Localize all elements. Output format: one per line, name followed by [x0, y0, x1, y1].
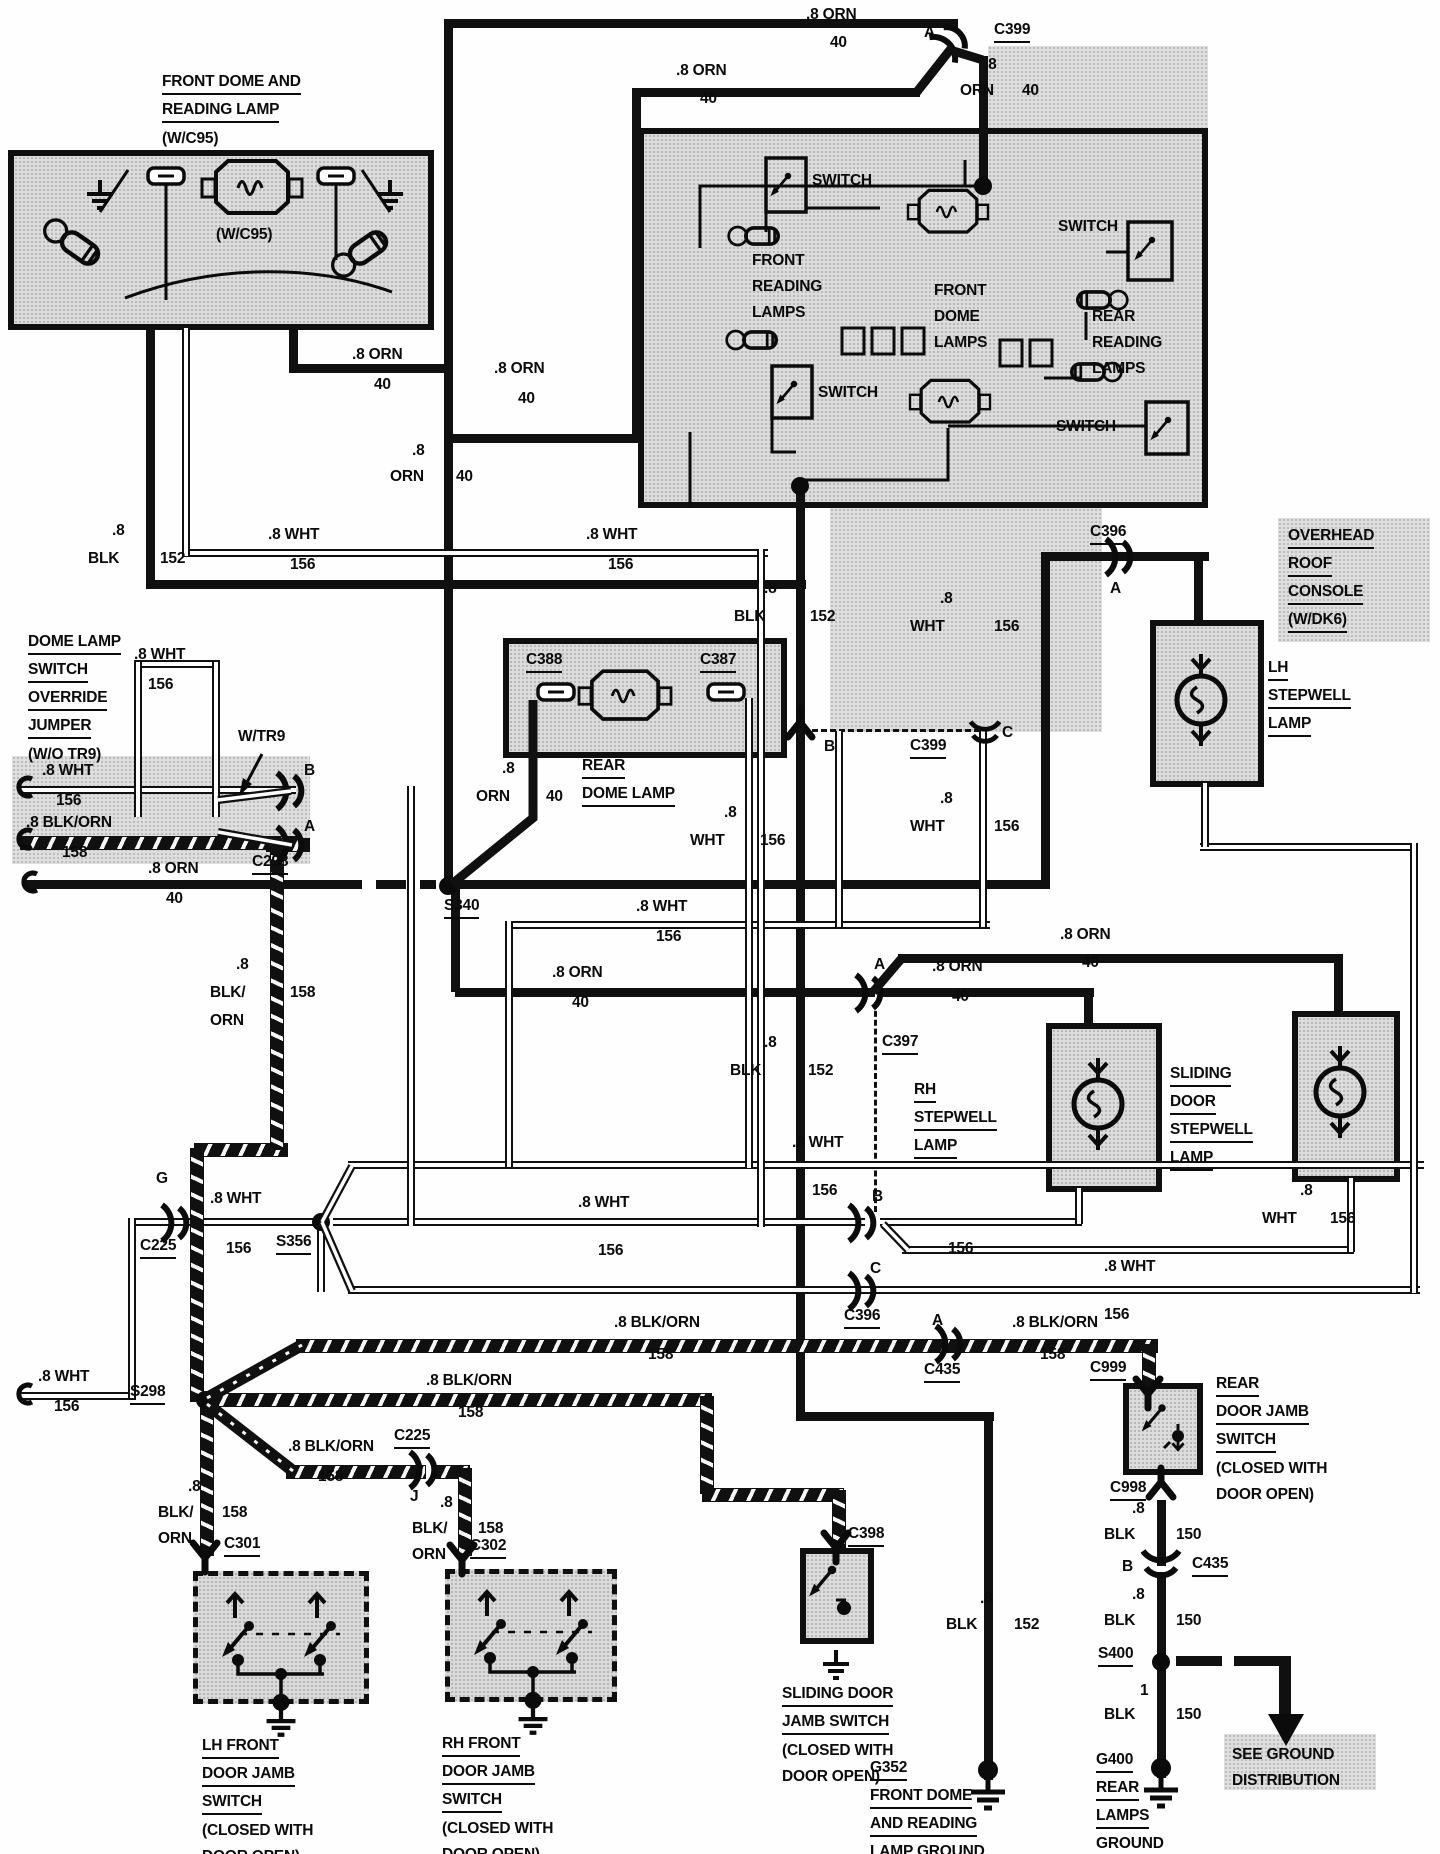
sliding-door-stepwell-lamp-box	[1292, 1011, 1400, 1182]
label-sgd-line: DISTRIBUTION	[1232, 1768, 1340, 1794]
label-l136-line: ORN	[412, 1542, 446, 1568]
label-l95: .8 WHT	[1104, 1254, 1155, 1280]
label-l11: 40	[374, 372, 391, 398]
label-l146: 40	[518, 386, 535, 412]
label-l68-line: .8	[236, 952, 249, 978]
label-l7: .8	[984, 52, 997, 78]
label-l103-line: 158	[648, 1342, 673, 1368]
wire-segment	[1075, 1188, 1083, 1224]
label-l118: BLK	[1104, 1702, 1135, 1728]
label-fdl-line: DOME	[934, 304, 980, 330]
label-l55-line: .8	[940, 586, 953, 612]
label-lhjs-line: SWITCH	[202, 1790, 262, 1815]
label-orc-line: OVERHEAD	[1288, 524, 1374, 549]
label-l34-line: B	[304, 758, 315, 784]
label-l13-line: ORN	[390, 464, 424, 490]
wire-segment	[212, 662, 220, 817]
wire-segment	[182, 549, 768, 557]
label-l34: B	[304, 758, 315, 784]
label-l119: 150	[1176, 1702, 1201, 1728]
label-l98-line: C396	[844, 1304, 880, 1329]
label-rdl-line: DOME LAMP	[582, 782, 675, 807]
gndsm-symbol	[823, 1650, 849, 1678]
label-l66: .8 ORN	[552, 960, 602, 986]
label-l114: BLK	[1104, 1608, 1135, 1634]
label-l45-line: C387	[700, 648, 736, 673]
label-lsl-line: LH	[1268, 656, 1288, 681]
label-l46-line: .8	[502, 756, 515, 782]
wire-segment	[1157, 1500, 1166, 1566]
label-l91: .8 WHT	[578, 1190, 629, 1216]
label-l124-line: 158	[458, 1400, 483, 1426]
label-l11-line: 40	[374, 372, 391, 398]
label-l109: BLK	[1104, 1522, 1135, 1548]
label-sw2: SWITCH	[1058, 214, 1118, 240]
label-l82-line: WHT	[1262, 1206, 1297, 1232]
label-l106: C999	[1090, 1356, 1126, 1384]
label-l48-line: 40	[546, 784, 563, 810]
label-l87-line: 156	[226, 1236, 251, 1262]
label-l10-line: .8 ORN	[352, 342, 402, 368]
label-l2-line: 40	[830, 30, 847, 56]
label-l104: .8 BLK/ORN	[1012, 1310, 1098, 1336]
wire-segment	[128, 1218, 136, 1398]
label-l76: .8 ORN	[1060, 922, 1110, 948]
label-l80: 152	[808, 1058, 833, 1084]
wire-segment	[146, 580, 806, 589]
label-l2: 40	[830, 30, 847, 56]
label-l71: ORN	[210, 1008, 244, 1034]
label-l76-line: .8 ORN	[1060, 922, 1110, 948]
label-l36-line: C298	[252, 850, 288, 875]
label-l77-line: 40	[1082, 950, 1099, 976]
label-l43: S340	[444, 894, 479, 922]
label-l7-line: .8	[984, 52, 997, 78]
label-l13: ORN	[390, 464, 424, 490]
label-l124: 158	[458, 1400, 483, 1426]
label-l92-line: 156	[598, 1238, 623, 1264]
label-l88-line: S356	[276, 1230, 311, 1255]
label-l42-line: 40	[166, 886, 183, 912]
label-l115-line: 150	[1176, 1608, 1201, 1634]
label-l52-line: .8	[764, 576, 777, 602]
label-l15-line: .8	[112, 518, 125, 544]
label-l103: 158	[648, 1342, 673, 1368]
label-l33: W/TR9	[238, 724, 285, 750]
label-l137-line: C301	[224, 1532, 260, 1557]
label-l138-line: C302	[470, 1534, 506, 1559]
label-sdjs-line: JAMB SWITCH	[782, 1710, 889, 1735]
label-l86-line: .8 WHT	[210, 1186, 261, 1212]
label-l141: BLK	[946, 1612, 977, 1638]
label-l62: WHT	[910, 814, 945, 840]
label-l9-line: 40	[1022, 78, 1039, 104]
label-g400: G400REARLAMPSGROUND	[1096, 1748, 1164, 1854]
label-l131-line: 158	[222, 1500, 247, 1526]
label-l116-line: S400	[1098, 1642, 1133, 1667]
label-l75-line: 40	[952, 984, 969, 1010]
wire-segment	[880, 1218, 1082, 1226]
label-l115: 150	[1176, 1608, 1201, 1634]
label-l91-line: .8 WHT	[578, 1190, 629, 1216]
label-frl: FRONTREADINGLAMPS	[752, 248, 822, 326]
label-l1-line: .8 ORN	[806, 2, 856, 28]
label-l101-line: C435	[924, 1358, 960, 1383]
label-l109-line: BLK	[1104, 1522, 1135, 1548]
label-l35: A	[304, 814, 315, 840]
label-l59-line: C399	[910, 734, 946, 759]
label-l139: C398	[848, 1522, 884, 1550]
label-l50-line: WHT	[690, 828, 725, 854]
label-l131: 158	[222, 1500, 247, 1526]
label-l50: WHT	[690, 828, 725, 854]
label-l63-line: 156	[994, 814, 1019, 840]
label-l81: .8	[1300, 1178, 1313, 1204]
label-l86: .8 WHT	[210, 1186, 261, 1212]
label-rrl-line: READING	[1092, 330, 1162, 356]
label-l59: C399	[910, 734, 946, 762]
label-l142: 152	[1014, 1612, 1039, 1638]
label-lhjs-line: DOOR JAMB	[202, 1762, 295, 1787]
label-l102-line: .8 BLK/ORN	[614, 1310, 700, 1336]
label-l6-line: C399	[994, 18, 1030, 43]
label-l92: 156	[598, 1238, 623, 1264]
wire-segment	[289, 328, 298, 368]
label-l120: .8 WHT	[38, 1364, 89, 1390]
wire-segment	[1234, 1656, 1280, 1666]
label-l53-line: BLK	[734, 604, 765, 630]
label-l43-line: S340	[444, 894, 479, 919]
label-l97-line: C	[870, 1256, 881, 1282]
label-l104-line: .8 BLK/ORN	[1012, 1310, 1098, 1336]
label-l116: S400	[1098, 1642, 1133, 1670]
label-l58-line: B	[824, 734, 835, 760]
label-lsl-line: LAMP	[1268, 712, 1311, 737]
label-l84-line: G	[156, 1166, 168, 1192]
label-l67: 40	[572, 990, 589, 1016]
label-l42: 40	[166, 886, 183, 912]
label-sw4: SWITCH	[1056, 414, 1116, 440]
label-dlsoj-line: OVERRIDE	[28, 686, 107, 711]
label-l84: G	[156, 1166, 168, 1192]
label-rdl-line: REAR	[582, 754, 625, 779]
label-l19: 156	[290, 552, 315, 578]
wire-segment	[348, 1286, 1420, 1294]
label-l96-line: 156	[1104, 1302, 1129, 1328]
label-l80-line: 152	[808, 1058, 833, 1084]
label-l108-line: .8	[1132, 1496, 1145, 1522]
label-rdjs-line: REAR	[1216, 1372, 1259, 1397]
wire-segment	[444, 19, 453, 888]
label-l141-line: BLK	[946, 1612, 977, 1638]
label-l60-line: C	[1002, 720, 1013, 746]
label-l90: 156	[812, 1178, 837, 1204]
label-l79: BLK	[730, 1058, 761, 1084]
label-l3-line: .8 ORN	[676, 58, 726, 84]
label-l113: .8	[1132, 1582, 1145, 1608]
label-frl-line: FRONT	[752, 248, 804, 274]
wire-segment	[878, 988, 1094, 997]
label-rdjs: REARDOOR JAMBSWITCH(CLOSED WITHDOOR OPEN…	[1216, 1372, 1327, 1508]
label-l82: WHT	[1262, 1206, 1297, 1232]
label-l54-line: 152	[810, 604, 835, 630]
label-l100: A	[932, 1308, 943, 1334]
label-g400-line: GROUND	[1096, 1832, 1164, 1854]
wire-segment	[332, 880, 436, 889]
label-l17-line: 152	[160, 546, 185, 572]
wire-segment	[455, 988, 875, 997]
label-l90-line: 156	[812, 1178, 837, 1204]
wire-segment	[700, 1396, 714, 1494]
label-frl-line: LAMPS	[752, 300, 805, 326]
label-lsl-line: STEPWELL	[1268, 684, 1351, 709]
label-l142-line: 152	[1014, 1612, 1039, 1638]
label-rdjs-line: SWITCH	[1216, 1428, 1276, 1453]
wire-segment	[505, 921, 513, 1167]
wire-segment	[745, 698, 753, 1168]
label-l133: .8	[440, 1490, 453, 1516]
label-l44: C388	[526, 648, 562, 676]
label-l20-line: .8 WHT	[586, 522, 637, 548]
wire-segment	[1176, 1656, 1222, 1666]
label-l39-line: .8 BLK/ORN	[26, 810, 112, 836]
wire-segment	[632, 88, 641, 438]
label-rdjs-line: DOOR OPEN)	[1216, 1482, 1314, 1508]
label-l19-line: 156	[290, 552, 315, 578]
label-fdrl-line: READING LAMP	[162, 98, 279, 123]
label-l21: 156	[608, 552, 633, 578]
label-lhjs-line: DOOR OPEN)	[202, 1844, 300, 1854]
wire-segment	[190, 1148, 204, 1402]
label-l48: 40	[546, 784, 563, 810]
label-sw3-line: SWITCH	[818, 380, 878, 406]
label-lhjs-line: LH FRONT	[202, 1734, 279, 1759]
label-l139-line: C398	[848, 1522, 884, 1547]
label-rrl: REARREADINGLAMPS	[1092, 304, 1162, 382]
label-sdsl-line: DOOR	[1170, 1090, 1216, 1115]
label-l130: BLK/	[158, 1500, 193, 1526]
label-l61: .8	[940, 786, 953, 812]
label-rrl-line: REAR	[1092, 304, 1135, 330]
label-l129-line: .8	[188, 1474, 201, 1500]
label-l49: .8	[724, 800, 737, 826]
label-l70-line: 158	[290, 980, 315, 1006]
label-l31-line: .8 WHT	[134, 642, 185, 668]
wire-segment	[1157, 1572, 1166, 1666]
label-l67-line: 40	[572, 990, 589, 1016]
label-l36: C298	[252, 850, 288, 878]
label-l63: 156	[994, 814, 1019, 840]
label-l93: B	[872, 1184, 883, 1210]
label-l112-line: C435	[1192, 1552, 1228, 1577]
label-sw1-line: SWITCH	[812, 168, 872, 194]
label-l5: A	[924, 20, 935, 46]
label-sw2-line: SWITCH	[1058, 214, 1118, 240]
label-l123: .8 BLK/ORN	[426, 1368, 512, 1394]
label-fdrl-line: (W/C95)	[162, 126, 218, 152]
label-l117-line: 1	[1140, 1678, 1148, 1704]
label-sgd: SEE GROUNDDISTRIBUTION	[1232, 1742, 1340, 1794]
label-l10: .8 ORN	[352, 342, 402, 368]
label-fdl: FRONTDOMELAMPS	[934, 278, 987, 356]
label-rdjs-line: (CLOSED WITH	[1216, 1456, 1327, 1482]
label-l54: 152	[810, 604, 835, 630]
label-l37-line: .8 WHT	[42, 758, 93, 784]
label-l121: 156	[54, 1394, 79, 1420]
label-l78: .8	[764, 1030, 777, 1056]
label-l73-line: C397	[882, 1030, 918, 1055]
label-l72: A	[874, 952, 885, 978]
label-l32: 156	[148, 672, 173, 698]
label-l102: .8 BLK/ORN	[614, 1310, 700, 1336]
label-l117: 1	[1140, 1678, 1148, 1704]
lh-stepwell-lamp-box	[1150, 620, 1264, 787]
label-l145-line: .8 ORN	[494, 356, 544, 382]
label-l134: BLK/	[412, 1516, 447, 1542]
wire-segment	[1200, 843, 1418, 851]
label-l146-line: 40	[518, 386, 535, 412]
label-l44-line: C388	[526, 648, 562, 673]
label-l47: ORN	[476, 784, 510, 810]
label-c396t: C396	[1090, 520, 1126, 548]
label-fdrl-line: FRONT DOME AND	[162, 70, 301, 95]
label-l72-line: A	[874, 952, 885, 978]
label-l110: 150	[1176, 1522, 1201, 1548]
label-l108: .8	[1132, 1496, 1145, 1522]
c399-shade	[988, 46, 1208, 134]
wire-segment	[448, 434, 640, 443]
label-g400-line: LAMPS	[1096, 1804, 1149, 1829]
label-l61-line: .8	[940, 786, 953, 812]
label-l14-line: 40	[456, 464, 473, 490]
rear-door-jamb-switch-box	[1123, 1383, 1203, 1475]
label-fdl-line: LAMPS	[934, 330, 987, 356]
label-rhjs-line: SWITCH	[442, 1788, 502, 1813]
wire-segment	[796, 486, 805, 1416]
label-l40-line: 158	[62, 840, 87, 866]
label-l60: C	[1002, 720, 1013, 746]
label-l94: 156	[948, 1236, 973, 1262]
label-l51-line: 156	[760, 828, 785, 854]
label-l125-line: .8 BLK/ORN	[288, 1434, 374, 1460]
wire-segment	[296, 1339, 956, 1353]
label-rhjs-line: DOOR OPEN)	[442, 1842, 540, 1854]
c397-connector-line	[874, 1002, 877, 1212]
lh-front-door-jamb-switch-box	[193, 1571, 369, 1704]
label-l47-line: ORN	[476, 784, 510, 810]
label-l129: .8	[188, 1474, 201, 1500]
label-l85-line: C225	[140, 1234, 176, 1259]
label-l128-line: J	[410, 1484, 418, 1510]
label-l119-line: 150	[1176, 1702, 1201, 1728]
label-l74-line: .8 ORN	[932, 954, 982, 980]
label-g352-line: AND READING	[870, 1812, 977, 1837]
label-rhsl-line: LAMP	[914, 1134, 957, 1159]
label-l16-line: BLK	[88, 546, 119, 572]
label-l133-line: .8	[440, 1490, 453, 1516]
label-l31: .8 WHT	[134, 642, 185, 668]
label-l3: .8 ORN	[676, 58, 726, 84]
label-l41-line: .8 ORN	[148, 856, 198, 882]
label-l18-line: .8 WHT	[268, 522, 319, 548]
label-sdsl-line: SLIDING	[1170, 1062, 1231, 1087]
label-dlsoj-line: JUMPER	[28, 714, 91, 739]
label-l70: 158	[290, 980, 315, 1006]
label-dlsoj-line: DOME LAMP	[28, 630, 121, 655]
label-l20: .8 WHT	[586, 522, 637, 548]
label-l57: 156	[994, 614, 1019, 640]
label-l41: .8 ORN	[148, 856, 198, 882]
label-c396t-line: C396	[1090, 520, 1126, 545]
label-l75: 40	[952, 984, 969, 1010]
label-l66-line: .8 ORN	[552, 960, 602, 986]
wire-segment	[1041, 552, 1209, 561]
label-l32-line: 156	[148, 672, 173, 698]
label-g352-line: G352	[870, 1756, 907, 1781]
label-l110-line: 150	[1176, 1522, 1201, 1548]
label-l55: .8	[940, 586, 953, 612]
label-l5-line: A	[924, 20, 935, 46]
label-sdjs-line: SLIDING DOOR	[782, 1682, 893, 1707]
label-sw1: SWITCH	[812, 168, 872, 194]
wire-segment	[130, 1218, 326, 1226]
label-l122: S298	[130, 1380, 165, 1408]
label-l137: C301	[224, 1532, 260, 1560]
label-l56: WHT	[910, 614, 945, 640]
label-l127-line: C225	[394, 1424, 430, 1449]
label-fdrl: FRONT DOME ANDREADING LAMP(W/C95)	[162, 70, 301, 152]
label-wc95i-line: (W/C95)	[216, 222, 272, 248]
label-l120-line: .8 WHT	[38, 1364, 89, 1390]
label-l122-line: S298	[130, 1380, 165, 1405]
label-l53: BLK	[734, 604, 765, 630]
label-l1: .8 ORN	[806, 2, 856, 28]
wire-segment	[1084, 988, 1093, 1028]
label-l51: 156	[760, 828, 785, 854]
label-l12: .8	[412, 438, 425, 464]
label-l39: .8 BLK/ORN	[26, 810, 112, 836]
label-l111-line: B	[1122, 1554, 1133, 1580]
label-l87: 156	[226, 1236, 251, 1262]
label-sgd-line: SEE GROUND	[1232, 1742, 1334, 1768]
label-l58: B	[824, 734, 835, 760]
label-l121-line: 156	[54, 1394, 79, 1420]
label-l85: C225	[140, 1234, 176, 1262]
label-l81-line: .8	[1300, 1178, 1313, 1204]
label-frl-line: READING	[752, 274, 822, 300]
label-l134-line: BLK/	[412, 1516, 447, 1542]
label-l145: .8 ORN	[494, 356, 544, 382]
label-l97: C	[870, 1256, 881, 1282]
label-rdjs-line: DOOR JAMB	[1216, 1400, 1309, 1425]
label-orc: OVERHEADROOFCONSOLE(W/DK6)	[1288, 524, 1374, 636]
label-rhjs-line: RH FRONT	[442, 1732, 520, 1757]
sliding-door-jamb-switch-box	[800, 1548, 874, 1644]
label-ac396: A	[1110, 576, 1121, 602]
label-l78-line: .8	[764, 1030, 777, 1056]
label-g352: G352FRONT DOMEAND READINGLAMP GROUND	[870, 1756, 985, 1854]
label-l89-line: .8 WHT	[792, 1130, 843, 1156]
label-l8-line: ORN	[960, 78, 994, 104]
wire-segment	[182, 328, 190, 556]
label-l71-line: ORN	[210, 1008, 244, 1034]
label-wc95i: (W/C95)	[216, 222, 272, 248]
wire-segment	[636, 88, 920, 97]
label-l52: .8	[764, 576, 777, 602]
wire-segment	[1041, 552, 1050, 888]
label-l89: .8 WHT	[792, 1130, 843, 1156]
label-l65: 156	[656, 924, 681, 950]
